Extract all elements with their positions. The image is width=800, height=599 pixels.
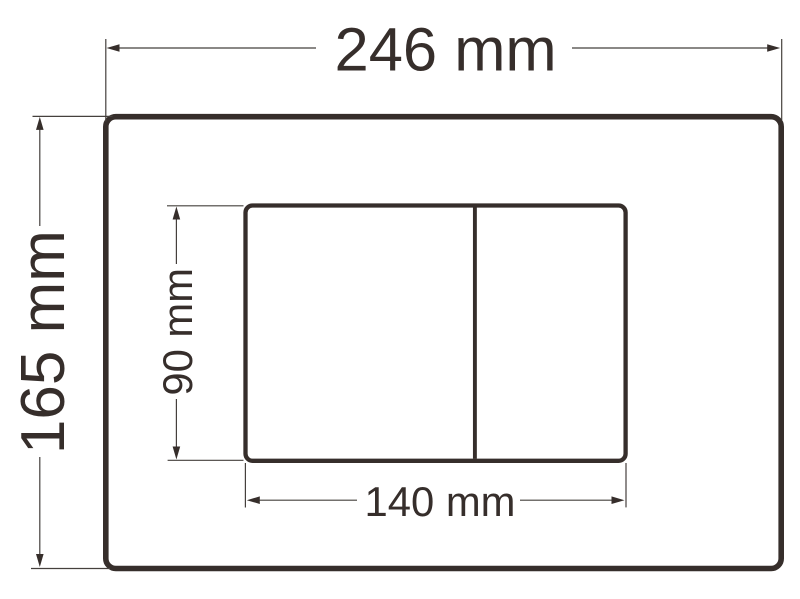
svg-text:90 mm: 90 mm [154,268,201,396]
svg-text:140 mm: 140 mm [365,478,516,525]
svg-text:246 mm: 246 mm [335,16,557,85]
svg-text:165 mm: 165 mm [9,230,78,454]
